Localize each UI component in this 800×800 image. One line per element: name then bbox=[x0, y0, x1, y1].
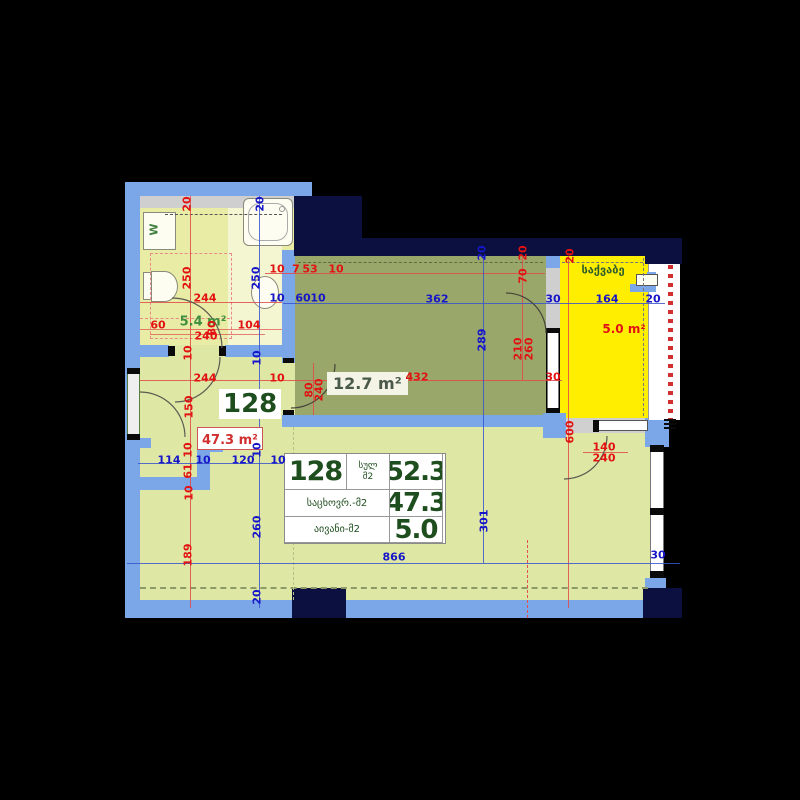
dim-line-red bbox=[313, 363, 314, 415]
dim-line-red bbox=[583, 452, 628, 453]
window-right-mullion-top bbox=[650, 445, 664, 452]
bathtub-drain bbox=[279, 206, 285, 212]
balcony-floor bbox=[560, 256, 648, 418]
window-balcony-exit bbox=[598, 420, 648, 431]
wall-bottom bbox=[125, 600, 682, 618]
dim-line-red bbox=[265, 273, 545, 274]
door-jamb bbox=[283, 410, 294, 415]
table-total-label: სულ მ2 bbox=[347, 454, 390, 490]
floor-plan-canvas: W 5.4 m² 12.7 m² 128 47 bbox=[0, 0, 800, 800]
label-boiler-name: საქვაბე bbox=[581, 264, 624, 277]
column-bottom-center bbox=[292, 588, 346, 618]
column-top-b bbox=[318, 196, 362, 238]
area-summary-table: 128 სულ მ2 52.3 საცხოვრ.-მ2 47.3 აივანი-… bbox=[284, 453, 446, 544]
window-right-mullion-mid bbox=[650, 508, 664, 515]
hall-floor bbox=[140, 345, 283, 600]
dim-line-red bbox=[522, 258, 523, 380]
hatch-mark bbox=[664, 427, 676, 429]
dim-line-red bbox=[140, 302, 282, 303]
dim-line-blue bbox=[283, 303, 665, 304]
washing-machine: W bbox=[143, 212, 176, 250]
wall-niche-horizontal bbox=[138, 477, 210, 490]
wall-bath-right bbox=[282, 250, 295, 363]
table-unit-number: 128 bbox=[285, 454, 347, 490]
sink bbox=[251, 276, 279, 309]
beam-top-band bbox=[318, 238, 682, 256]
wall-bath-bottom-a bbox=[140, 345, 169, 357]
window-left bbox=[127, 372, 140, 438]
door-jamb bbox=[168, 346, 175, 356]
window-left-sill-top bbox=[127, 368, 140, 374]
door-jamb bbox=[283, 358, 294, 363]
label-living-area: 47.3 m² bbox=[202, 433, 258, 448]
table-balcony-label: აივანი-მ2 bbox=[285, 517, 390, 543]
window-left-sill-bottom bbox=[127, 434, 140, 440]
washer-label: W bbox=[148, 223, 161, 235]
door-jamb bbox=[219, 346, 226, 356]
label-boiler-area: 5.0 m² bbox=[602, 322, 645, 336]
partition-door-zone bbox=[546, 268, 560, 328]
hatch-mark bbox=[664, 423, 676, 425]
balcony-railing-hatch bbox=[668, 256, 673, 420]
window-right-mullion-bottom bbox=[650, 571, 664, 578]
table-living-value: 47.3 bbox=[390, 490, 443, 517]
dim-line-blue bbox=[138, 463, 283, 464]
wall-bedroom-bottom bbox=[282, 415, 563, 427]
table-living-label: საცხოვრ.-მ2 bbox=[285, 490, 390, 517]
bedroom-door-opening bbox=[282, 363, 295, 415]
radiator bbox=[636, 274, 658, 286]
wall-partition-top bbox=[546, 256, 560, 268]
dim-line-red bbox=[568, 256, 569, 608]
label-bedroom-area-box: 12.7 m² bbox=[327, 372, 408, 395]
dashed-line bbox=[140, 587, 648, 589]
dashed-line bbox=[165, 214, 282, 215]
wall-top bbox=[125, 182, 312, 196]
column-bottom-right bbox=[643, 588, 682, 618]
dashed-line bbox=[643, 258, 644, 416]
wall-bath-bottom-b bbox=[225, 345, 283, 357]
window-balcony-exit-jamb bbox=[593, 420, 599, 432]
wall-partition-bottom bbox=[543, 413, 566, 438]
label-bathroom-area: 5.4 m² bbox=[180, 315, 227, 330]
dim-line-red bbox=[190, 196, 191, 608]
bathtub bbox=[243, 198, 293, 246]
table-total-value: 52.3 bbox=[390, 454, 443, 490]
column-top-right bbox=[645, 238, 682, 264]
column-top-a bbox=[294, 196, 318, 256]
dashed-line bbox=[527, 540, 528, 618]
dashed-line bbox=[298, 262, 543, 263]
window-partition-jamb-bottom bbox=[546, 408, 560, 413]
label-unit-number-box: 128 bbox=[219, 389, 281, 419]
label-bedroom-area: 12.7 m² bbox=[333, 374, 402, 393]
window-partition bbox=[547, 333, 559, 413]
label-unit-number: 128 bbox=[223, 389, 277, 419]
dim-line-red bbox=[150, 334, 265, 335]
label-living-area-box: 47.3 m² bbox=[197, 427, 263, 450]
window-partition-jamb-top bbox=[546, 328, 560, 333]
dim-line-blue bbox=[127, 563, 680, 564]
table-balcony-value: 5.0 bbox=[390, 517, 443, 543]
hatch-mark bbox=[664, 419, 676, 421]
